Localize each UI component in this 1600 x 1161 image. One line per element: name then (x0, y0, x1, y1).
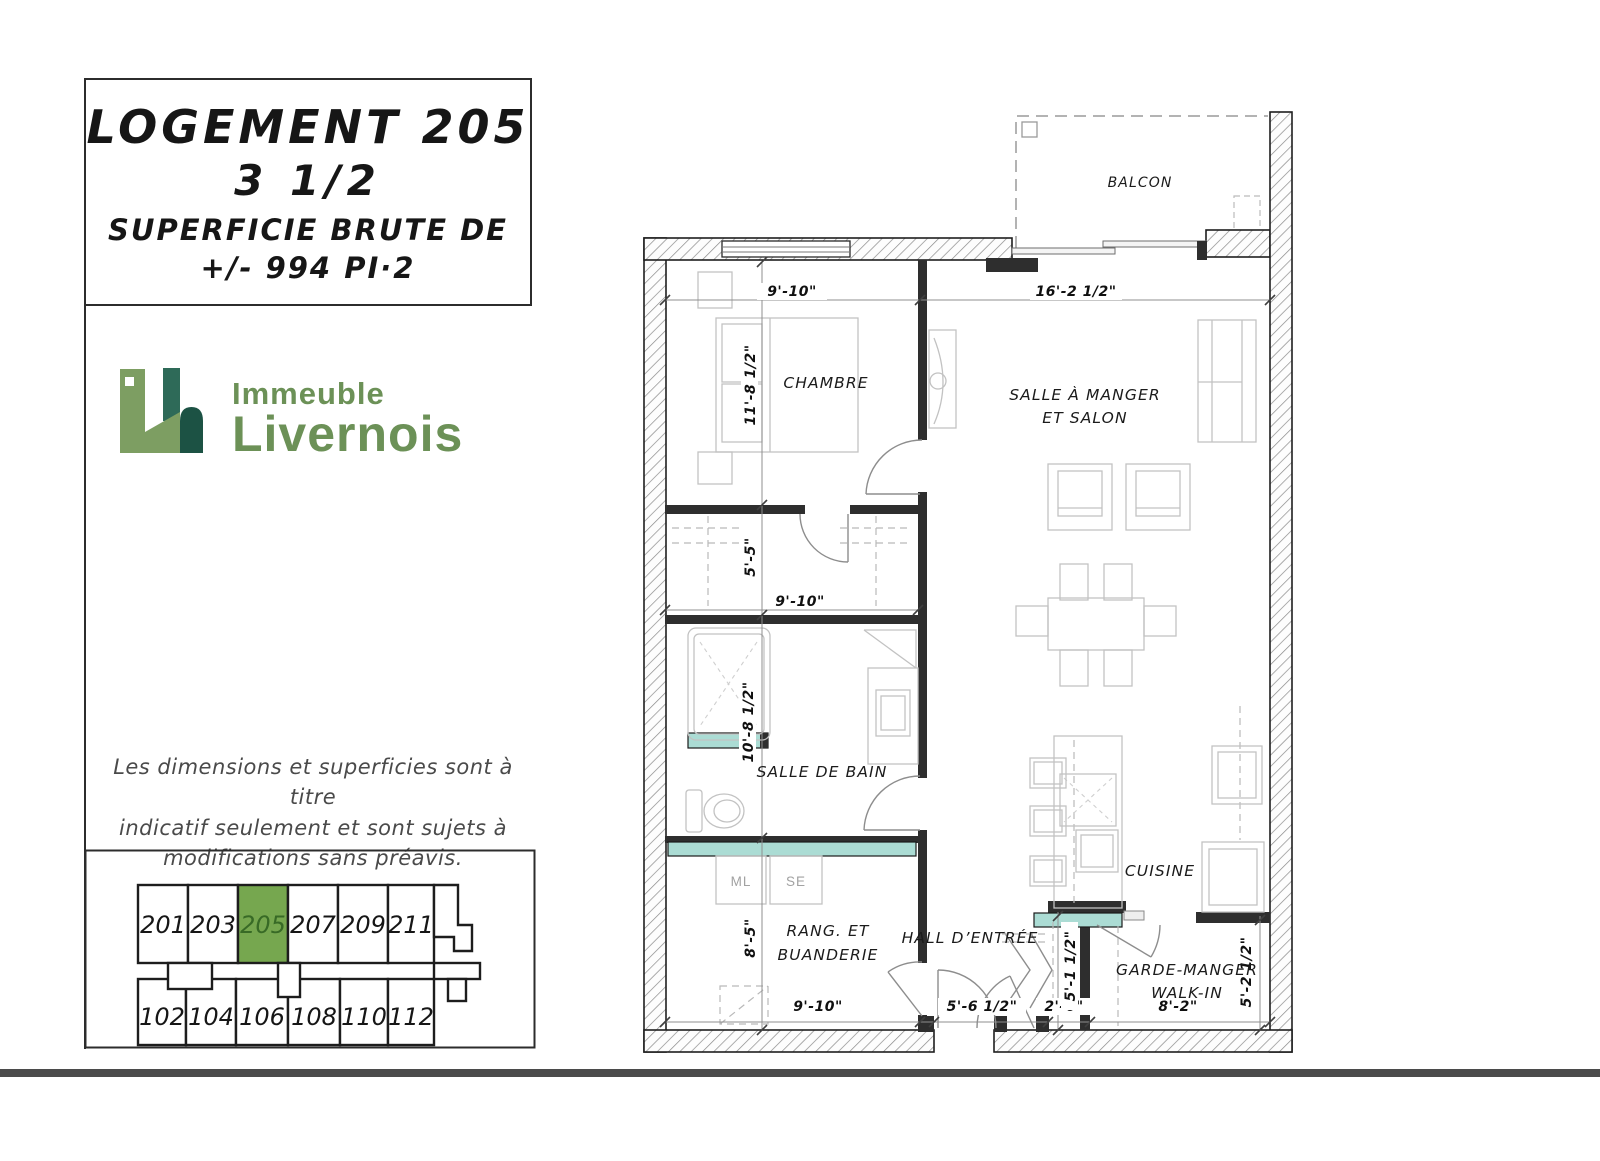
dining-chair (1060, 564, 1088, 600)
title-block: LOGEMENT 205 3 1/2 SUPERFICIE BRUTE DE +… (84, 78, 532, 306)
floor-plan-sheet: LOGEMENT 205 3 1/2 SUPERFICIE BRUTE DE +… (0, 0, 1600, 1161)
unit-label-102: 102 (139, 1003, 185, 1031)
dim-laundry-width: 9'-10" (793, 999, 843, 1015)
toilet-bowl (704, 794, 744, 828)
balcony-column (1022, 122, 1037, 137)
unit-label-203: 203 (190, 911, 236, 939)
dining-chair (1144, 606, 1176, 636)
counter-stub (1124, 911, 1144, 920)
label-living-1: SALLE À MANGER (1009, 385, 1161, 404)
room-labels: BALCON CHAMBRE SALLE À MANGER ET SALON S… (757, 175, 1258, 1002)
apartment-floor-plan: ML SE (620, 85, 1320, 1075)
laundry-appliances: ML SE (716, 856, 822, 904)
dining-chair (1016, 606, 1048, 636)
wall-right (1270, 112, 1292, 1052)
unit-label-207: 207 (290, 911, 337, 939)
disclaimer-line-2: indicatif seulement et sont sujets à (90, 813, 536, 843)
patio-door-pier (986, 258, 1038, 272)
logo-text-livernois: Livernois (232, 405, 463, 463)
nightstand (698, 272, 732, 308)
dim-living-width: 16'-2 1/2" (1035, 284, 1116, 300)
sofa (1198, 320, 1256, 442)
unit-label-205: 205 (240, 911, 286, 939)
dim-closet-width: 9'-10" (775, 594, 825, 610)
tv-screen (934, 338, 943, 424)
pantry-door-leaf (1097, 925, 1151, 957)
logo: Immeuble Livernois (120, 368, 463, 463)
corridor-right-notch (448, 979, 466, 1001)
building-right-notch (434, 885, 472, 951)
kitchen-fixtures (1030, 736, 1264, 912)
dim-bathroom-depth: 10'-8 1/2" (741, 681, 757, 762)
pantry-door-swing (1151, 925, 1160, 957)
wall-top-right (1206, 230, 1270, 257)
stove-counter (1202, 842, 1264, 912)
bedroom-window (722, 241, 850, 257)
bathroom-fixtures (686, 628, 918, 832)
logo-tower-right (163, 368, 180, 421)
dining-chair (1060, 650, 1088, 686)
unit-type: 3 1/2 (234, 156, 382, 205)
disclaimer-line-1: Les dimensions et superficies sont à tit… (90, 752, 536, 813)
wall-bottom-right (994, 1030, 1292, 1052)
label-kitchen: CUISINE (1125, 862, 1195, 880)
unit-label-209: 209 (340, 911, 386, 939)
label-bedroom: CHAMBRE (783, 374, 868, 392)
dishwasher (1076, 830, 1118, 872)
dining-chair (1104, 650, 1132, 686)
unit-label-211: 211 (388, 911, 434, 939)
laundry-counter (668, 842, 916, 856)
unit-title: LOGEMENT 205 (86, 100, 529, 154)
unit-label-110: 110 (341, 1003, 387, 1031)
dim-bedroom-width: 9'-10" (767, 284, 817, 300)
label-hall: HALL D’ENTRÉE (902, 928, 1039, 947)
laundry-door-swing (888, 962, 922, 972)
patio-door-panel-2 (1103, 241, 1206, 247)
label-pantry-2: WALK-IN (1151, 984, 1223, 1002)
area-label: SUPERFICIE BRUTE DE (108, 213, 508, 247)
bedroom-door-swing (866, 440, 922, 494)
corridor-right-end (434, 963, 480, 979)
dimension-labels: 9'-10" 16'-2 1/2" 11'-8 1/2" 5'-5" 9'-10… (739, 283, 1255, 1016)
dim-hall-depth: 5'-1 1/2" (1063, 931, 1079, 1002)
dim-bedroom-depth: 11'-8 1/2" (743, 344, 759, 425)
dim-closet-depth: 5'-5" (743, 537, 759, 576)
label-laundry-2: BUANDERIE (778, 946, 879, 964)
logo-text: Immeuble Livernois (232, 368, 463, 463)
dryer-label: SE (786, 874, 806, 889)
bathroom-door-swing (864, 776, 920, 830)
dim-laundry-depth: 8'-5" (743, 918, 759, 957)
corridor-notch-left (168, 963, 212, 989)
washer-label: ML (731, 874, 752, 889)
label-living-2: ET SALON (1042, 409, 1127, 427)
dining-chair (1104, 564, 1132, 600)
dining-table (1048, 598, 1144, 650)
label-laundry-1: RANG. ET (787, 922, 870, 940)
unit-label-201: 201 (140, 911, 186, 939)
logo-arch (180, 407, 203, 453)
unit-label-108: 108 (291, 1003, 337, 1031)
dim-hall-width: 5'-6 1/2" (947, 999, 1018, 1015)
nightstand (698, 452, 732, 484)
unit-label-112: 112 (388, 1003, 434, 1031)
building-logo-icon (120, 368, 204, 454)
wall-left (644, 238, 666, 1052)
refrigerator (1212, 746, 1262, 804)
patio-door-jamb (1197, 241, 1207, 260)
unit-label-106: 106 (239, 1003, 285, 1031)
logo-roof (145, 412, 180, 453)
laundry-door-leaf (888, 972, 922, 1016)
living-furniture (1016, 320, 1256, 686)
walkin-door-swing (800, 514, 848, 562)
building-unit-map: 201 203 205 207 209 211 102 104 106 108 … (84, 849, 536, 1049)
label-pantry-1: GARDE-MANGER (1116, 961, 1258, 979)
wall-bottom-left (644, 1030, 934, 1052)
unit-label-104: 104 (188, 1003, 234, 1031)
label-balcony: BALCON (1108, 175, 1173, 191)
toilet-tank (686, 790, 702, 832)
corridor-notch-middle (278, 963, 300, 997)
label-bathroom: SALLE DE BAIN (757, 763, 888, 781)
logo-window (125, 377, 134, 386)
patio-door-panel-1 (1012, 248, 1115, 254)
area-value: +/- 994 PI·2 (201, 251, 416, 285)
